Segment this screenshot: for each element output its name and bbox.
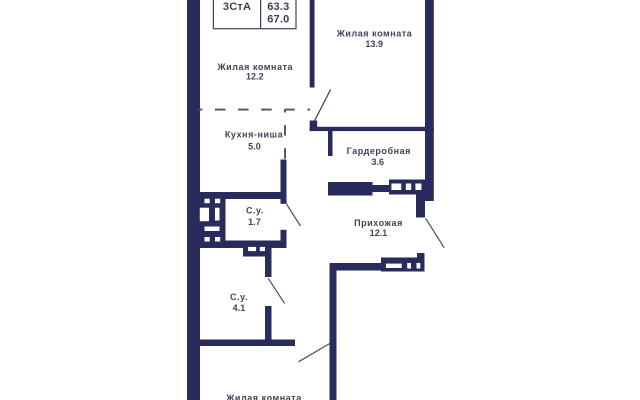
svg-text:С.у.: С.у. (230, 292, 248, 302)
svg-text:Прихожая: Прихожая (354, 218, 403, 228)
svg-text:67.0: 67.0 (267, 14, 289, 26)
svg-text:12.2: 12.2 (246, 71, 264, 81)
svg-text:Гардеробная: Гардеробная (347, 146, 411, 156)
svg-text:5.0: 5.0 (248, 142, 261, 152)
svg-text:Жилая комната: Жилая комната (217, 62, 294, 72)
svg-text:Жилая комната: Жилая комната (225, 393, 302, 400)
svg-text:3СтА: 3СтА (223, 1, 251, 13)
svg-text:4.1: 4.1 (233, 303, 246, 313)
svg-text:12.1: 12.1 (370, 228, 388, 238)
svg-text:Жилая комната: Жилая комната (336, 28, 413, 38)
svg-text:13.9: 13.9 (365, 39, 383, 49)
svg-text:Кухня-ниша: Кухня-ниша (225, 129, 284, 139)
svg-text:63.3: 63.3 (267, 1, 289, 13)
svg-text:С.у.: С.у. (246, 206, 264, 216)
svg-text:1.7: 1.7 (248, 217, 261, 227)
svg-text:3.6: 3.6 (371, 157, 384, 167)
